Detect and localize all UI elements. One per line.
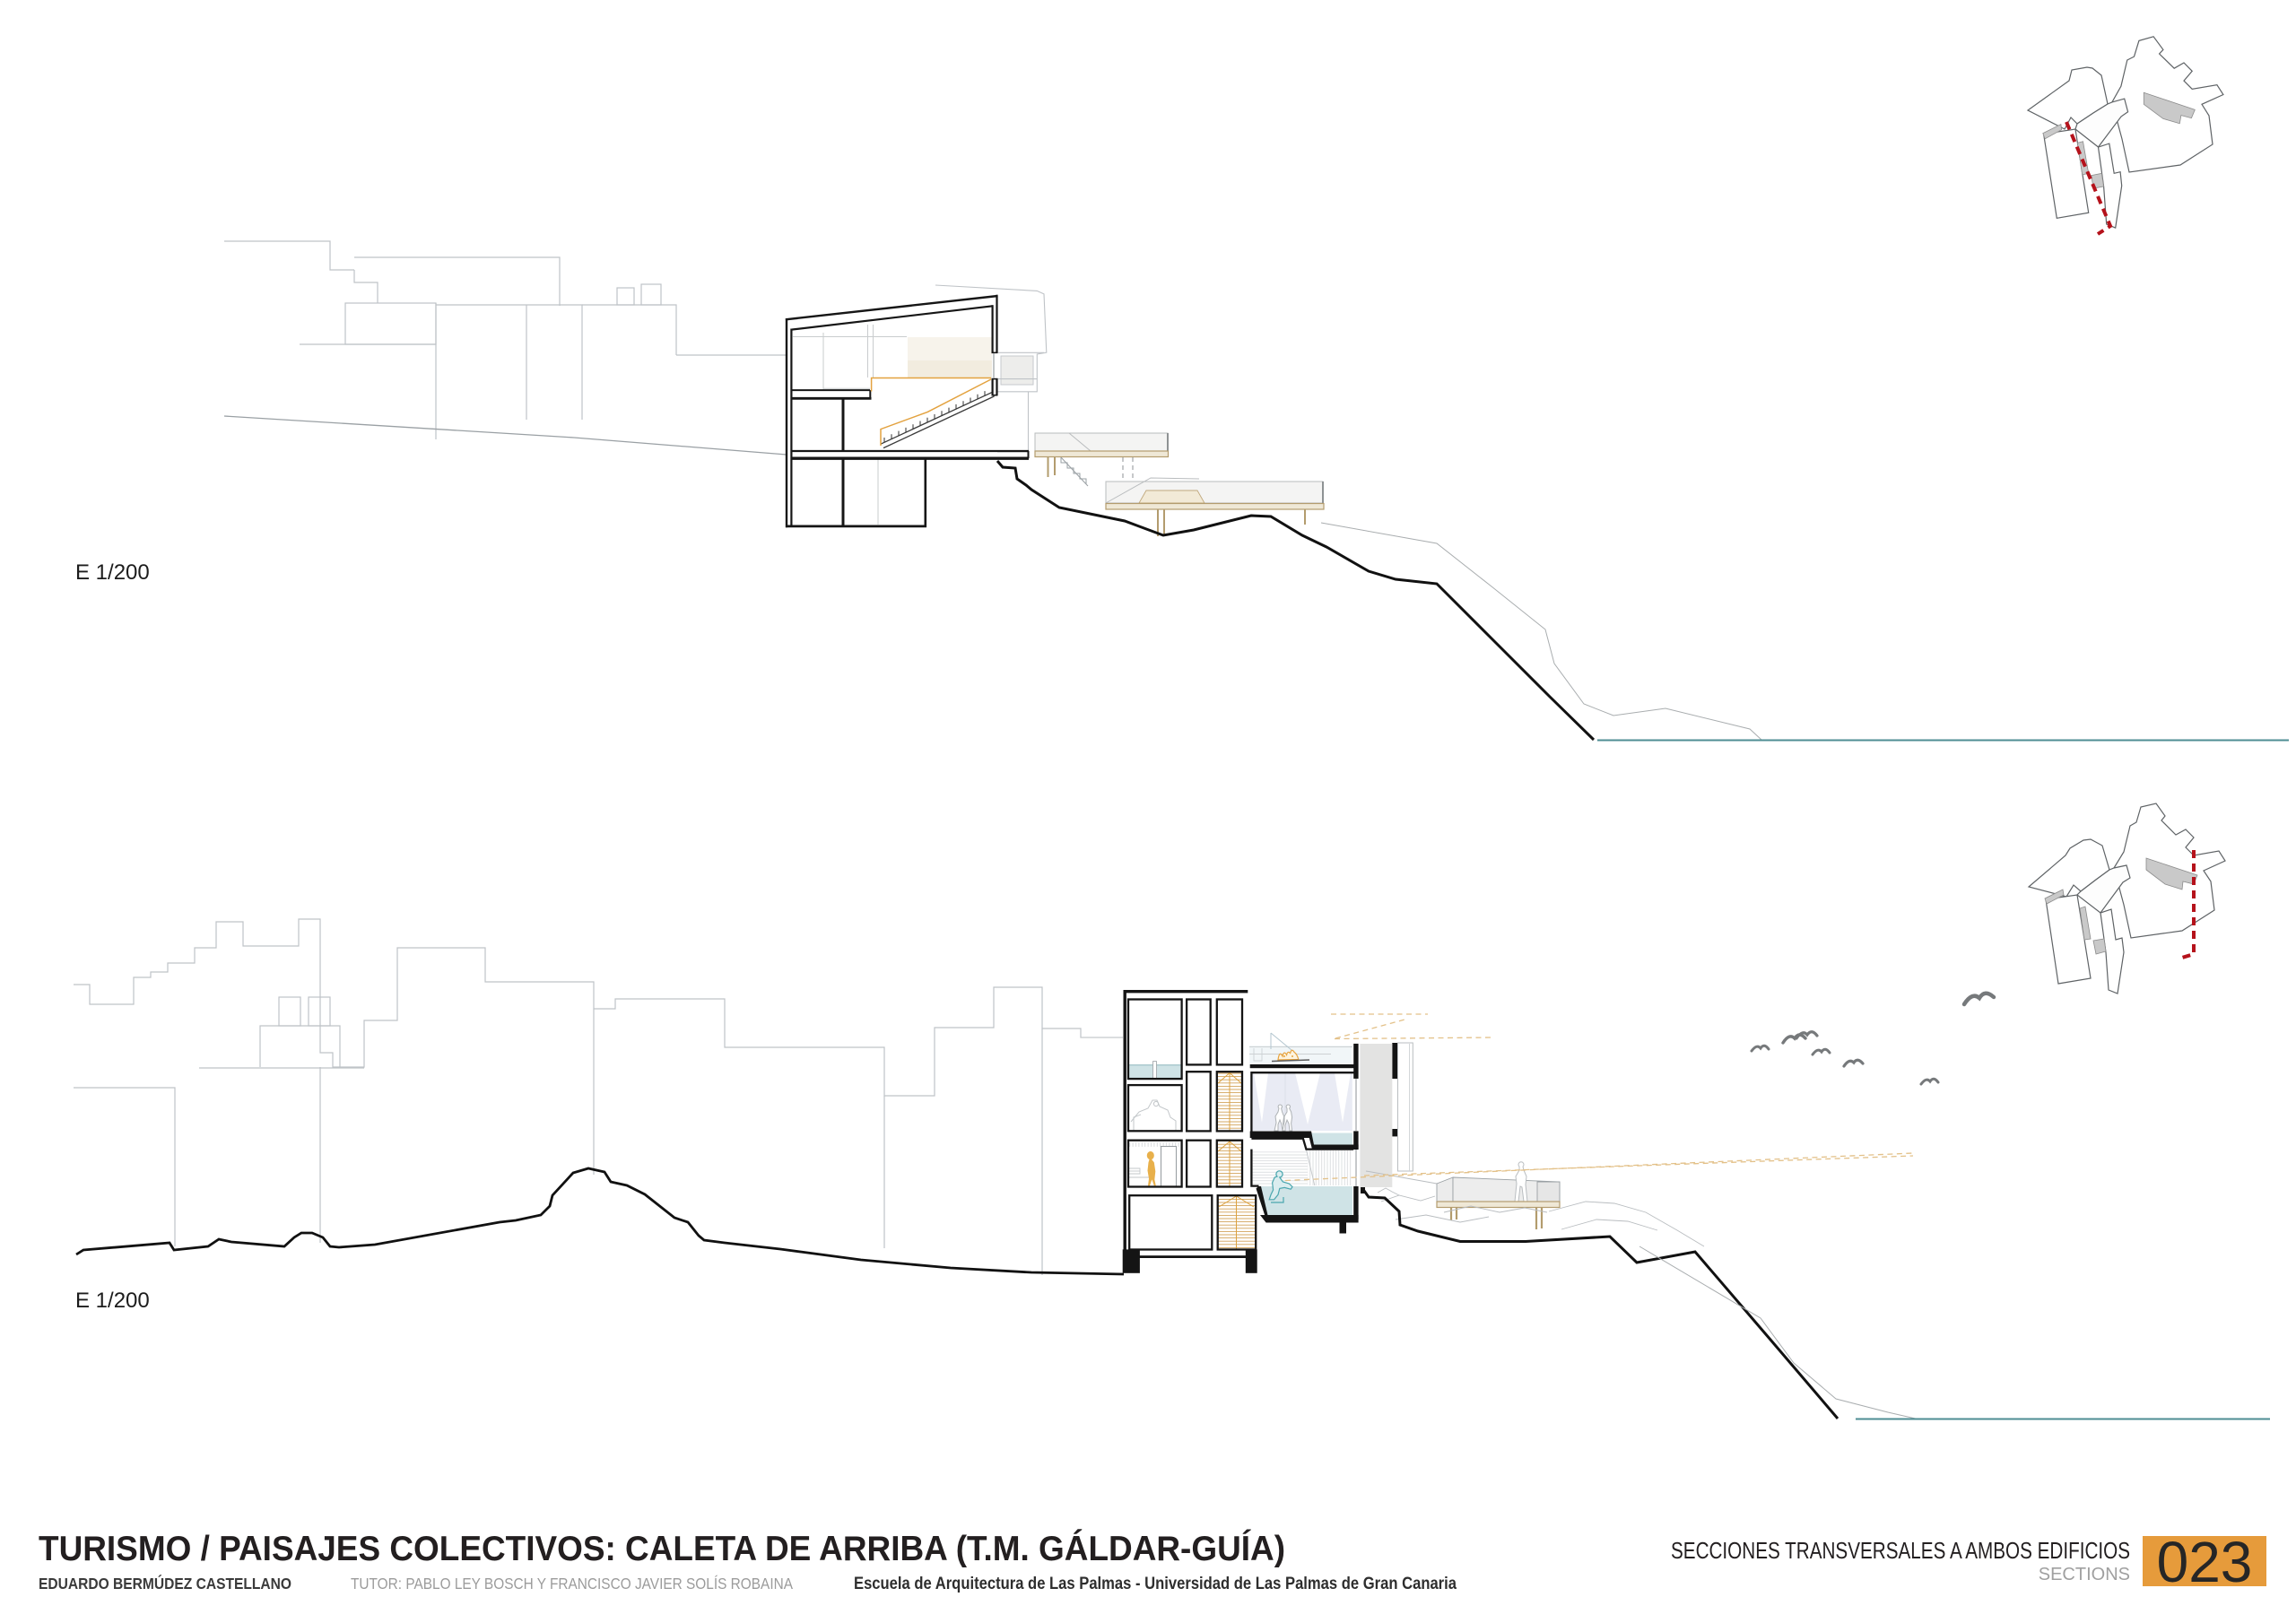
svg-text:SECCIONES TRANSVERSALES A AMBO: SECCIONES TRANSVERSALES A AMBOS EDIFICIO… [1671, 1537, 2130, 1564]
svg-text:E 1/200: E 1/200 [75, 560, 150, 585]
svg-text:Escuela de Arquitectura de Las: Escuela de Arquitectura de Las Palmas - … [854, 1575, 1457, 1593]
svg-text:TUTOR: PABLO LEY BOSCH Y FRANC: TUTOR: PABLO LEY BOSCH Y FRANCISCO JAVIE… [351, 1575, 793, 1593]
svg-text:SECTIONS: SECTIONS [2039, 1565, 2130, 1584]
svg-text:TURISMO / PAISAJES COLECTIVOS:: TURISMO / PAISAJES COLECTIVOS: CALETA DE… [39, 1529, 1285, 1568]
svg-text:EDUARDO BERMÚDEZ CASTELLANO: EDUARDO BERMÚDEZ CASTELLANO [39, 1574, 291, 1593]
svg-text:023: 023 [2157, 1530, 2253, 1594]
svg-text:E 1/200: E 1/200 [75, 1289, 150, 1313]
